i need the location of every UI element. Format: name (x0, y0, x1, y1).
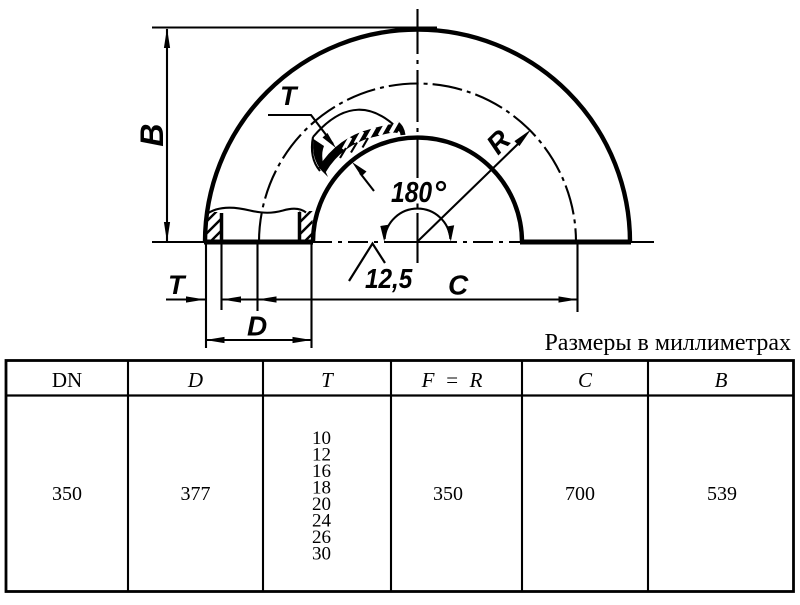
svg-text:350: 350 (433, 483, 463, 505)
svg-text:Размеры в миллиметрах: Размеры в миллиметрах (544, 330, 791, 356)
svg-text:T: T (168, 270, 187, 300)
svg-text:30: 30 (312, 544, 331, 565)
svg-text:539: 539 (707, 483, 737, 505)
svg-text:12,5: 12,5 (365, 262, 413, 294)
svg-text:DN: DN (52, 368, 82, 392)
svg-text:700: 700 (565, 483, 595, 505)
svg-text:B: B (134, 123, 170, 146)
svg-text:C: C (578, 368, 593, 392)
svg-text:377: 377 (181, 483, 211, 505)
svg-text:T: T (321, 368, 334, 392)
svg-text:B: B (715, 368, 728, 392)
svg-text:C: C (448, 270, 469, 301)
svg-text:D: D (247, 311, 267, 342)
svg-text:350: 350 (52, 483, 82, 505)
svg-text:T: T (280, 81, 299, 111)
svg-text:D: D (187, 368, 203, 392)
svg-text:180: 180 (391, 176, 432, 208)
svg-text:F = R: F = R (421, 368, 483, 392)
